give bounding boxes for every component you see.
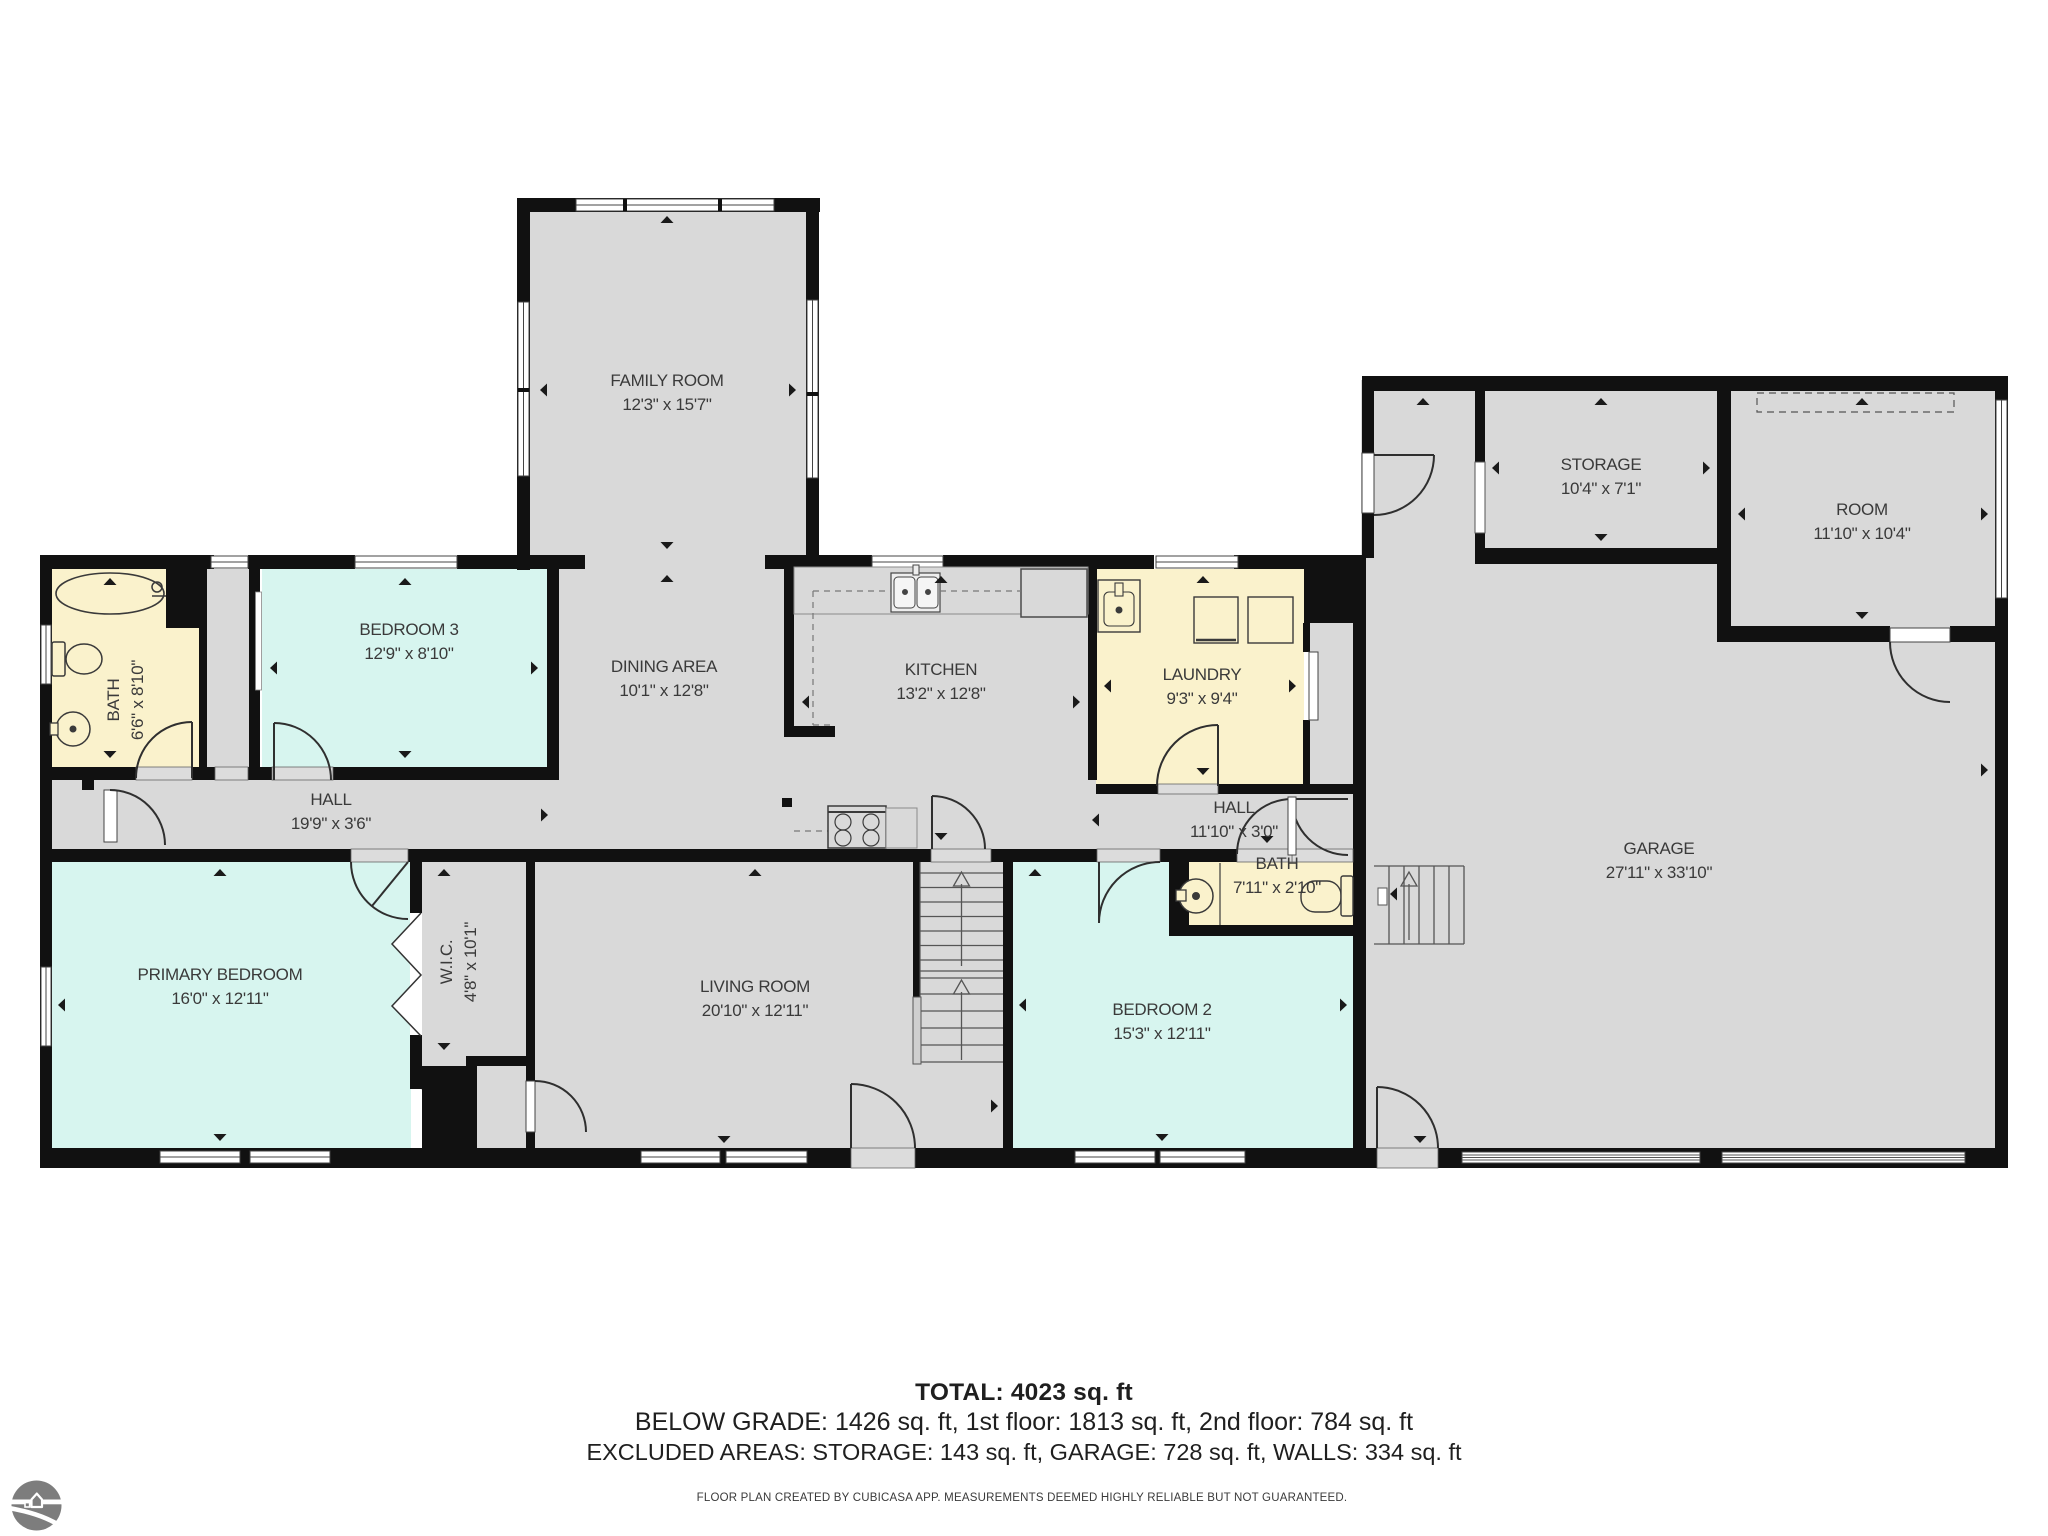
svg-text:27'11" x 33'10": 27'11" x 33'10": [1606, 863, 1713, 882]
svg-text:FAMILY ROOM: FAMILY ROOM: [610, 371, 723, 390]
svg-text:DINING AREA: DINING AREA: [611, 657, 718, 676]
svg-text:7'11" x 2'10": 7'11" x 2'10": [1233, 878, 1321, 897]
svg-text:4'8" x 10'1": 4'8" x 10'1": [461, 922, 480, 1002]
svg-text:EXCLUDED AREAS: STORAGE: 143 s: EXCLUDED AREAS: STORAGE: 143 sq. ft, GAR…: [586, 1439, 1462, 1465]
svg-text:PRIMARY BEDROOM: PRIMARY BEDROOM: [138, 965, 303, 984]
svg-text:BATH: BATH: [104, 679, 123, 722]
svg-text:BEDROOM 2: BEDROOM 2: [1112, 1000, 1211, 1019]
svg-text:LAUNDRY: LAUNDRY: [1163, 665, 1242, 684]
svg-text:12'3" x 15'7": 12'3" x 15'7": [622, 395, 712, 414]
svg-text:20'10" x 12'11": 20'10" x 12'11": [702, 1001, 809, 1020]
svg-text:ROOM: ROOM: [1836, 500, 1888, 519]
svg-text:19'9" x 3'6": 19'9" x 3'6": [291, 814, 371, 833]
svg-text:10'4" x 7'1": 10'4" x 7'1": [1561, 479, 1641, 498]
svg-text:FLOOR PLAN CREATED BY CUBICASA: FLOOR PLAN CREATED BY CUBICASA APP. MEAS…: [697, 1492, 1348, 1504]
svg-text:6'6" x 8'10": 6'6" x 8'10": [128, 660, 147, 740]
svg-text:13'2" x 12'8": 13'2" x 12'8": [896, 684, 986, 703]
svg-text:GARAGE: GARAGE: [1624, 839, 1695, 858]
svg-text:KITCHEN: KITCHEN: [905, 660, 978, 679]
svg-text:11'10" x 3'0": 11'10" x 3'0": [1190, 822, 1278, 841]
svg-text:TOTAL: 4023 sq. ft: TOTAL: 4023 sq. ft: [915, 1379, 1133, 1406]
svg-text:HALL: HALL: [310, 790, 351, 809]
svg-text:10'1" x 12'8": 10'1" x 12'8": [619, 681, 709, 700]
svg-text:BATH: BATH: [1256, 854, 1299, 873]
svg-text:W.I.C.: W.I.C.: [437, 940, 456, 984]
svg-text:12'9" x 8'10": 12'9" x 8'10": [364, 644, 454, 663]
svg-text:11'10" x 10'4": 11'10" x 10'4": [1813, 524, 1910, 543]
svg-text:BELOW GRADE: 1426 sq. ft, 1st: BELOW GRADE: 1426 sq. ft, 1st floor: 181…: [635, 1408, 1413, 1436]
svg-text:HALL: HALL: [1213, 798, 1254, 817]
svg-text:LIVING ROOM: LIVING ROOM: [700, 977, 810, 996]
svg-text:STORAGE: STORAGE: [1561, 455, 1642, 474]
svg-text:15'3" x 12'11": 15'3" x 12'11": [1113, 1024, 1210, 1043]
svg-text:9'3" x 9'4": 9'3" x 9'4": [1166, 689, 1237, 708]
svg-text:BEDROOM 3: BEDROOM 3: [359, 620, 458, 639]
svg-text:16'0" x 12'11": 16'0" x 12'11": [171, 989, 268, 1008]
